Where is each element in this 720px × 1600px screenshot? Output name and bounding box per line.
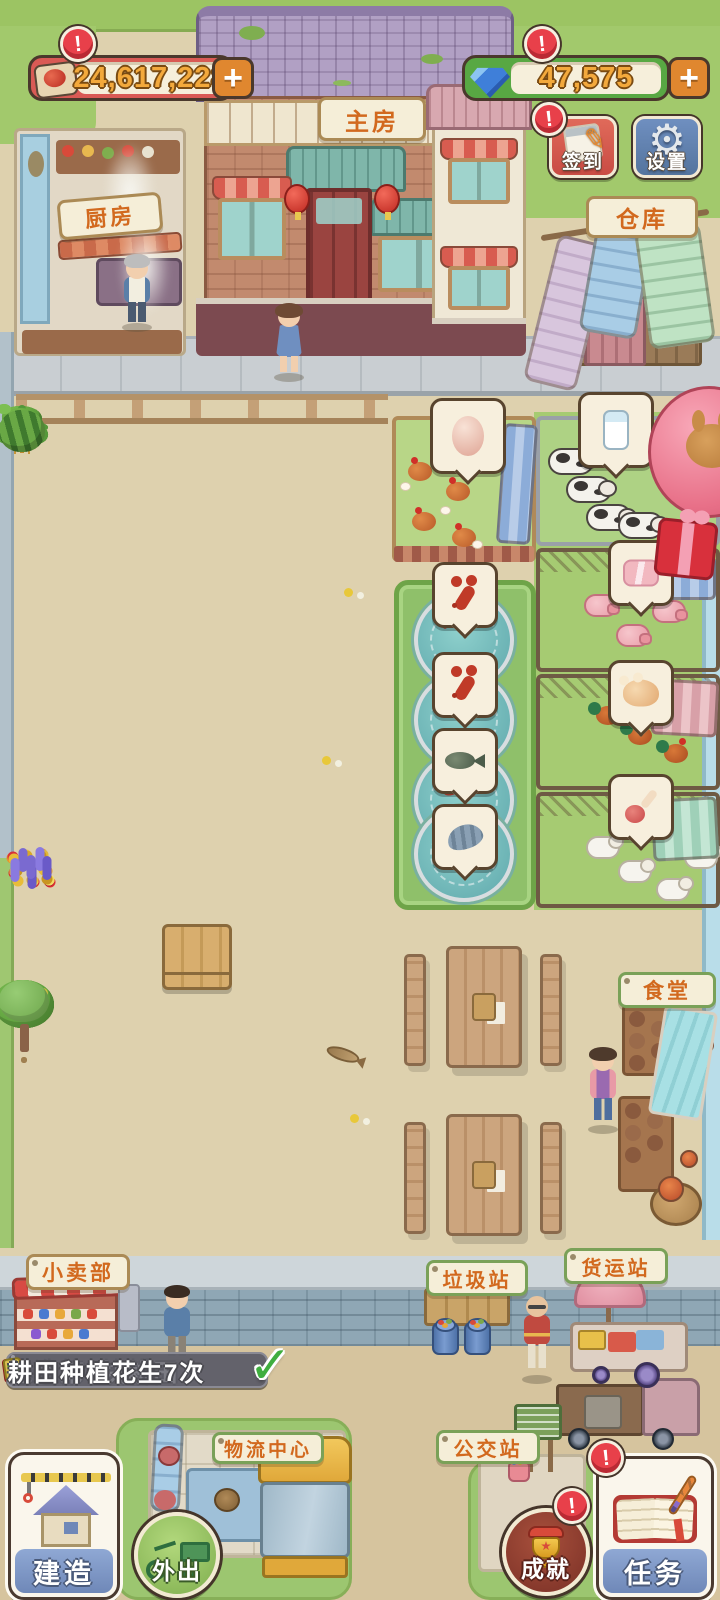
sign-screw [442,1436,448,1442]
picnic-table[interactable] [446,946,522,1068]
alert-exclamation: ! [537,31,547,58]
chicken [408,462,432,481]
shop-sign-label: 小卖部 [42,1257,114,1287]
truck-wheel [652,1428,674,1450]
red-lantern-left [284,184,310,214]
chicken-meat-icon [623,680,659,707]
npc-shadow [274,373,304,382]
food-currency-value: 24,617,228 [73,62,228,95]
warehouse-sign: 仓库 [586,196,698,238]
bench [404,1122,426,1234]
lamb-leg-icon [623,789,659,825]
goat [618,860,652,883]
food-currency-pill[interactable]: 24,617,228 [28,55,234,101]
tower-base [432,318,526,356]
alert-exclamation: ! [544,106,554,133]
bus-station-sign-label: 公交站 [454,1433,523,1462]
flatbed-truck [556,1378,706,1450]
red-lantern-right [374,184,400,214]
quest-text: 耕田种植花生7次 [8,1353,205,1388]
crayfish-icon [447,576,483,614]
settings-label: 设置 [646,153,688,172]
chicken-production-bubble[interactable] [608,660,674,726]
bus-station-sign: 公交站 [436,1430,540,1464]
main-house-sign-label: 主房 [345,102,399,137]
goat [586,836,620,859]
npc-shadow [522,1375,552,1384]
bus-sign-leg [548,1436,553,1472]
flower-decoration [322,756,331,765]
plus-icon: + [679,61,699,95]
truck-wheel [568,1428,590,1450]
crayfish-production-bubble-2[interactable] [432,652,498,718]
chicken [412,512,436,531]
fish-icon [445,750,485,772]
pig [616,624,650,647]
sign-screw [624,978,630,984]
settings-button[interactable]: ⚙ 设置 [633,116,701,178]
rooster [664,744,688,763]
shrimp-production-bubble[interactable] [432,804,498,870]
logistics-center-sign: 物流中心 [212,1432,324,1464]
bench [540,1122,562,1234]
tower-window-bottom [448,266,510,310]
field-fence [16,394,388,424]
npc-man[interactable] [160,1288,194,1362]
fish-production-bubble[interactable] [432,728,498,794]
old-man-polo [524,1315,550,1345]
laid-egg [400,482,411,491]
girl-legs [280,356,298,372]
tree-canopy [0,980,49,1022]
garbage-station-sign: 垃圾站 [426,1260,528,1296]
book-page-left [616,1498,657,1540]
tower-awning-top [440,138,518,160]
alert-exclamation: ! [601,1445,611,1472]
npc-girl[interactable] [272,306,306,378]
go-out-label: 外出 [138,1552,216,1586]
man-hair [164,1285,190,1298]
lavender-flowers [27,855,36,879]
garbage-barrel [432,1322,459,1355]
canteen-area[interactable] [616,1000,720,1210]
goat [656,878,690,901]
chicken [446,482,470,501]
signin-label: 签到 [562,153,604,172]
sapling-tree [0,980,56,1052]
canteen-sign-label: 食堂 [643,975,691,1005]
canteen-dish [680,1150,698,1168]
lamb-production-bubble[interactable] [608,774,674,840]
npc-old-man[interactable] [520,1296,554,1376]
gem-currency-pill[interactable]: 47,575 [462,55,670,101]
man-sweater [164,1307,190,1337]
egg-icon [452,416,484,456]
logistics-sign-label: 物流中心 [224,1435,312,1462]
logistics-banner [150,1423,185,1512]
bench [540,954,562,1066]
cow [566,476,612,503]
house-body-icon [41,1513,91,1547]
gem-icon [470,66,510,98]
main-house-window-left-awning [212,176,292,200]
gem-currency-field: 47,575 [511,62,661,94]
trike-handlebar [154,1541,176,1552]
garbage-barrel [464,1322,491,1355]
shrimp-icon [444,820,486,854]
flower-decoration [344,588,353,597]
freight-cart[interactable] [570,1322,688,1372]
kitchen-sign-label: 厨房 [84,198,137,234]
shop-side-tarp [118,1284,140,1332]
tree-trunk [20,1024,29,1052]
egg-production-bubble[interactable] [430,398,506,474]
old-man-legs [528,1344,546,1368]
alert-exclamation: ! [73,31,83,58]
build-label: 建造 [33,1552,95,1591]
watermelon-plant [0,404,48,456]
plus-icon: + [223,61,243,95]
quest-banner[interactable]: 耕田种植花生7次 [6,1352,268,1388]
house-door-icon [64,1522,78,1534]
woman-shirt [590,1069,616,1099]
npc-shadow [588,1125,618,1134]
book-pen-icon [613,1485,697,1547]
laid-egg [472,540,483,549]
kitchen-menu-board [20,134,50,324]
logistics-basket [214,1488,240,1512]
cart-wheel [592,1366,610,1384]
crane-beam [21,1473,111,1482]
quest-complete-check-icon: ✓ [248,1340,292,1392]
food-add-button[interactable]: + [212,57,254,99]
crayfish-icon [447,666,483,704]
tasks-label: 任务 [624,1552,686,1591]
logistics-jars [158,1446,180,1466]
truck-cargo-tarp [260,1482,350,1558]
tower-window-top [448,158,510,204]
warehouse-sign-label: 仓库 [616,200,668,234]
shop-shelves [14,1292,118,1350]
gift-box[interactable] [653,517,719,581]
freight-sign-label: 货运站 [582,1252,651,1281]
grandma-legs [128,302,146,322]
achievements-label: 成就 [506,1550,586,1584]
construction-house-icon [25,1473,107,1551]
milk-production-bubble[interactable] [578,392,654,468]
go-out-button[interactable]: 外出 [134,1512,220,1598]
canteen-sign: 食堂 [618,972,716,1008]
canteen-pot [658,1176,684,1202]
truck-tailgate [262,1556,348,1578]
main-house-sign: 主房 [318,97,426,141]
fish-decoration [325,1043,361,1066]
cart-wheel [634,1362,660,1388]
crane-hook [23,1493,33,1503]
truck-bed [556,1384,644,1436]
bus-stop-trash-bin [508,1462,530,1482]
crayfish-production-bubble-1[interactable] [432,562,498,628]
flower-decoration [350,1114,359,1123]
tower-awning-bottom [440,246,518,268]
laid-egg [440,506,451,515]
woman-legs [594,1098,612,1120]
main-house-window-left [218,198,286,260]
freight-station-sign: 货运站 [564,1248,668,1284]
girl-hair [275,303,303,318]
bench [404,954,426,1066]
npc-grandma[interactable] [120,258,154,328]
main-house-door[interactable] [306,188,372,308]
alert-exclamation: ! [567,1493,577,1520]
wooden-crate[interactable] [162,924,232,990]
woman-hair [589,1047,617,1061]
girl-dress [276,325,302,357]
old-man-glasses [528,1305,546,1309]
kitchen-counter [22,330,182,354]
garbage-sign-label: 垃圾站 [443,1264,512,1293]
game-screen: 厨房 主房 仓库 [0,0,720,1600]
npc-woman[interactable] [586,1050,620,1126]
npc-shadow [122,323,152,332]
picnic-table[interactable] [446,1114,522,1236]
food-currency-field: 24,617,228 [77,62,225,94]
build-label-band: 建造 [15,1549,113,1593]
build-button[interactable]: 建造 [8,1452,120,1600]
grandma-apron [124,277,150,303]
shop-sign: 小卖部 [26,1254,130,1290]
tasks-label-band: 任务 [603,1549,707,1593]
sign-screw [432,1266,438,1272]
grandma-hair [124,254,150,268]
gem-add-button[interactable]: + [668,57,710,99]
sign-screw [32,1260,38,1266]
sign-screw [570,1254,576,1260]
house-roof-icon [33,1485,99,1515]
gem-currency-value: 47,575 [539,62,634,95]
tasks-button[interactable]: 任务 [596,1456,714,1600]
tree-plot-sapling[interactable] [21,1057,27,1063]
left-grass-edge [0,858,14,1248]
milk-bottle-icon [603,410,629,450]
